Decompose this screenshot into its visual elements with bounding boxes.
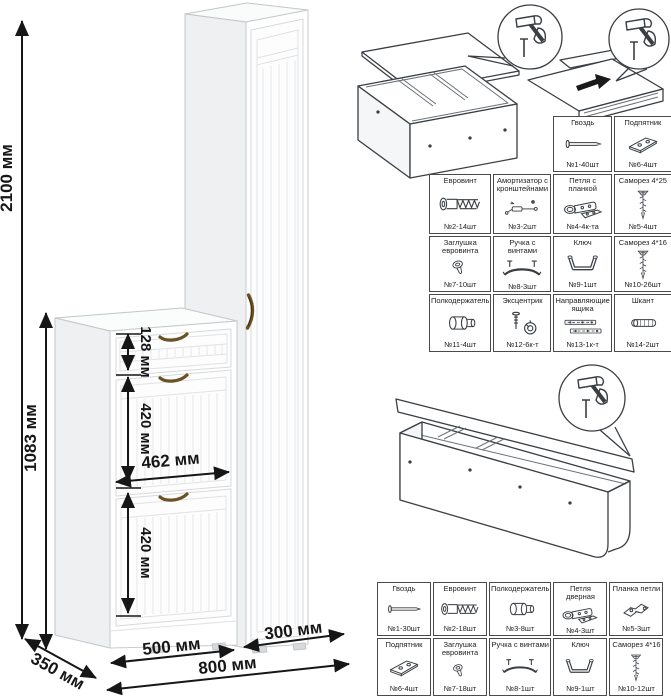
dim-depth: 350 мм (28, 649, 88, 694)
hardware-item-label: Эксцентрик (502, 297, 542, 305)
hardware-item-qty: №1-40шт (566, 160, 599, 169)
hardware-item-label: Планка петли (613, 585, 661, 593)
hardware-item: Евровинт №2-14шт (429, 174, 491, 234)
screw-icon (635, 188, 651, 220)
hardware-item: Гвоздь №1-40шт (553, 116, 611, 172)
screw-icon (635, 248, 651, 280)
hardware-item-qty: №3-2шт (508, 222, 536, 231)
hardware-item-qty: №2-14шт (444, 222, 477, 231)
dim-lower-height: 1083 мм (21, 404, 40, 472)
hardware-item-label: Заглушка евровинта (435, 641, 485, 658)
hardware-item-qty: №10-12шт (618, 684, 655, 693)
handle-icon (495, 655, 545, 679)
hardware-item: Саморез 4*25 №5-4шт (614, 174, 671, 234)
assembly-step-tall-carcass (396, 365, 634, 557)
hardware-item: Петля с планкой №4-4к-та (553, 174, 611, 234)
hardware-item-qty: №8-1шт (506, 684, 534, 693)
hardware-item: Ключ №9-1шт (553, 638, 607, 696)
hex-key-icon (555, 655, 605, 679)
hardware-item-label: Направляющие ящика (555, 297, 609, 314)
hardware-item-qty: №9-1шт (566, 684, 594, 693)
hardware-item-label: Петля с планкой (555, 177, 609, 194)
hardware-item-qty: №14-2шт (627, 340, 660, 349)
cap-icon (439, 661, 481, 681)
nail-icon (556, 132, 610, 156)
hardware-item-label: Заглушка евровинта (431, 239, 489, 256)
hardware-item-qty: №11-4шт (444, 340, 476, 349)
hardware-item: Эксцентрик №12-6к-т (493, 294, 551, 352)
hardware-item-qty: №10-26шт (625, 280, 662, 289)
hex-key-icon (556, 251, 610, 277)
foot-plate-icon (379, 655, 429, 679)
hardware-item-qty: №5-3шт (622, 624, 650, 633)
hardware-item-label: Саморез 4*16 (619, 239, 667, 247)
hinge-plate-icon (611, 597, 661, 621)
euro-screw-icon (433, 191, 487, 217)
hardware-item-qty: №12-6к-т (506, 340, 538, 349)
hardware-item-label: Шкант (632, 297, 654, 305)
hardware-item-label: Полкодержатель (431, 297, 489, 305)
handle-icon (495, 256, 549, 282)
hardware-item: Направляющие ящика №13-1к-т (553, 294, 611, 352)
hardware-item-label: Гвоздь (392, 585, 415, 593)
cap-icon (437, 257, 483, 279)
hardware-item-label: Подпятник (624, 119, 661, 127)
hardware-item-label: Ручка с винтами (495, 239, 549, 256)
hardware-item-qty: №3-8шт (506, 624, 534, 633)
hardware-item-qty: №6-4шт (390, 684, 418, 693)
hardware-item-label: Петля дверная (555, 585, 605, 602)
hardware-item-qty: №8-3шт (508, 282, 536, 291)
cam-lock-icon (498, 309, 546, 337)
hardware-item-qty: №1-30шт (388, 624, 421, 633)
hardware-item: Амортизатор с кронштейнами №3-2шт (493, 174, 551, 234)
foot-plate-icon (616, 132, 670, 156)
hardware-item: Подпятник №6-4шт (377, 638, 431, 696)
dim-door-upper-height: 420 мм (137, 403, 154, 454)
dim-door-lower-height: 420 мм (137, 527, 154, 578)
hardware-item: Полкодержатель №11-4шт (429, 294, 491, 352)
gas-lift-icon (495, 197, 549, 219)
assembly-sheet: 2100 мм 1083 мм 128 мм 420 мм 462 мм 420… (0, 0, 671, 700)
hardware-item: Гвоздь №1-30шт (377, 582, 431, 636)
dim-total-height: 2100 мм (0, 144, 16, 212)
hardware-item-qty: №7-18шт (444, 684, 477, 693)
hardware-item: Саморез 4*16 №10-26шт (614, 236, 671, 292)
dowel-icon (616, 311, 670, 335)
hardware-item: Полкодержатель №3-8шт (489, 582, 551, 636)
hardware-item: Саморез 4*16 №10-12шт (609, 638, 663, 696)
hardware-item-qty: №9-1шт (568, 280, 596, 289)
hardware-table-upper: Гвоздь №1-40шт Подпятник №6-4шт Евровинт… (429, 116, 670, 352)
hammer-callout (559, 365, 630, 456)
hardware-item-qty: №13-1к-т (567, 340, 599, 349)
hardware-item: Планка петли №5-3шт (609, 582, 663, 636)
hinge-icon (556, 195, 610, 221)
hardware-item-qty: №6-4шт (629, 160, 657, 169)
hardware-item-label: Амортизатор с кронштейнами (495, 177, 549, 194)
hardware-item: Подпятник №6-4шт (614, 116, 671, 172)
hardware-item-label: Полкодержатель (491, 585, 549, 593)
hardware-item-label: Подпятник (386, 641, 423, 649)
hinge-icon (555, 602, 605, 626)
hardware-item: Петля дверная №4-3шт (553, 582, 607, 636)
nail-icon (379, 598, 429, 620)
euro-screw-icon (435, 597, 485, 621)
hardware-item-label: Гвоздь (571, 119, 594, 127)
hardware-item: Ключ №9-1шт (553, 236, 611, 292)
hardware-item-qty: №2-18шт (444, 624, 477, 633)
hardware-item-label: Ключ (574, 239, 592, 247)
hardware-item-label: Ключ (571, 641, 589, 649)
hardware-item-qty: №4-4к-та (567, 222, 599, 231)
hardware-item-label: Саморез 4*16 (612, 641, 660, 649)
hardware-item: Заглушка евровинта №7-10шт (429, 236, 491, 292)
hardware-item: Ручка с винтами №8-1шт (489, 638, 551, 696)
hardware-item: Ручка с винтами №8-3шт (493, 236, 551, 292)
wardrobe-drawing (55, 3, 308, 653)
hardware-item-qty: №4-3шт (566, 626, 594, 635)
hardware-item-qty: №5-4шт (629, 222, 657, 231)
hardware-item: Евровинт №2-18шт (433, 582, 487, 636)
hardware-item-qty: №7-10шт (444, 280, 477, 289)
hardware-item-label: Евровинт (444, 177, 477, 185)
hardware-item: Шкант №14-2шт (614, 294, 671, 352)
drawer-slides-icon (556, 315, 610, 339)
hardware-item-label: Ручка с винтами (492, 641, 549, 649)
dim-drawer-height: 128 мм (137, 326, 154, 377)
shelf-pin-icon (433, 310, 487, 336)
hardware-table-lower: Гвоздь №1-30шт Евровинт №2-18шт Полкодер… (377, 582, 648, 696)
screw-icon (628, 652, 644, 682)
hardware-item-label: Саморез 4*25 (619, 177, 667, 185)
hardware-item-label: Евровинт (443, 585, 476, 593)
hammer-callout (468, 5, 562, 69)
shelf-pin-icon (495, 597, 545, 621)
hardware-item: Заглушка евровинта №7-18шт (433, 638, 487, 696)
